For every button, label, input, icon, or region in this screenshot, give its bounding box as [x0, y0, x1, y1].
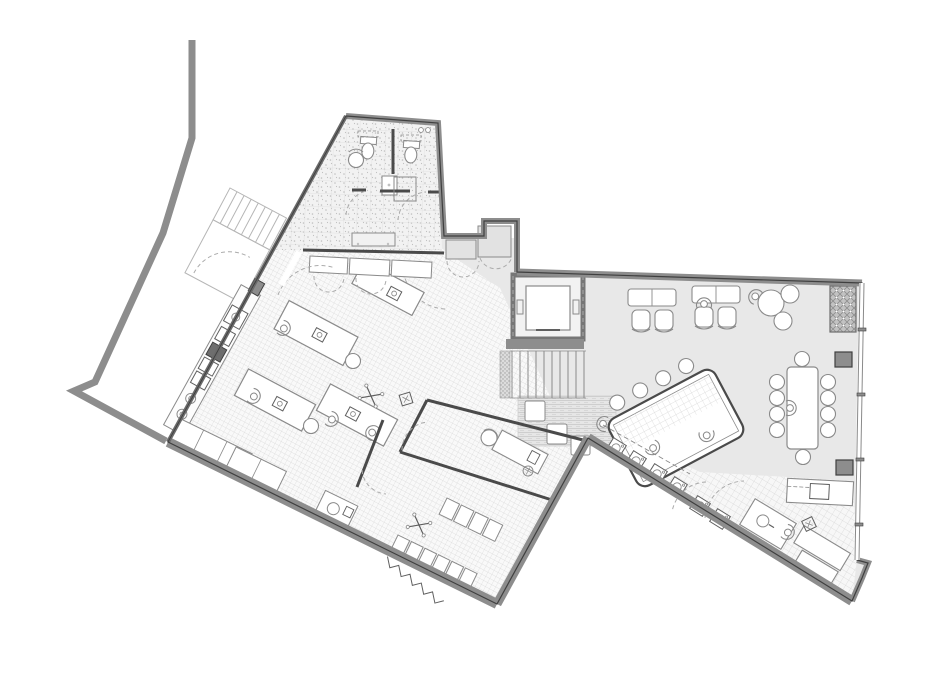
stair-sill-wall	[506, 339, 584, 349]
stair-hatch-strip	[500, 351, 510, 398]
floor-plan-canvas	[0, 0, 942, 685]
round-sink	[349, 153, 364, 168]
mullion	[857, 393, 865, 396]
mullion	[858, 328, 866, 331]
wall-vent	[419, 128, 424, 133]
pouf	[525, 401, 545, 421]
mullion	[855, 523, 863, 526]
stool	[346, 354, 361, 369]
hatched-void	[830, 286, 856, 332]
mullion	[856, 458, 864, 461]
stool	[304, 419, 319, 434]
elevator-car	[526, 286, 570, 330]
lobby-cupboard	[446, 240, 476, 259]
column	[835, 352, 852, 367]
column	[836, 460, 853, 475]
floor-plan-page	[0, 0, 942, 685]
kitchen-counter	[786, 478, 853, 505]
wall-vent	[426, 128, 431, 133]
